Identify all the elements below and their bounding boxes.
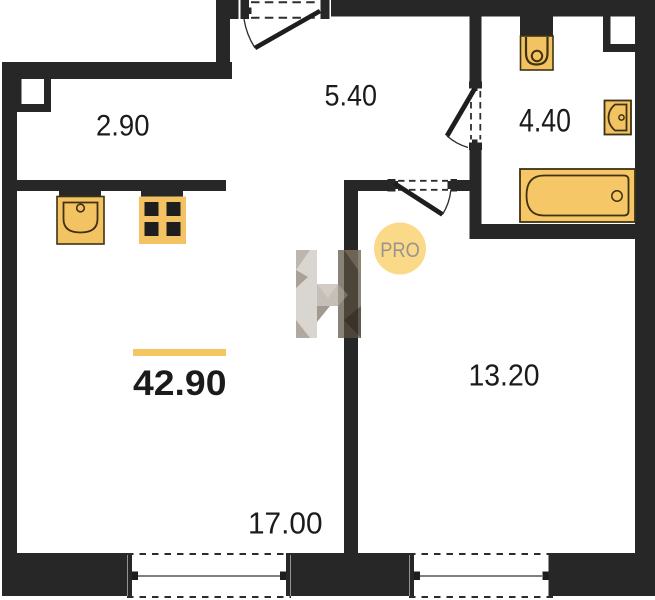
svg-text:2.90: 2.90 bbox=[96, 110, 150, 143]
svg-text:13.20: 13.20 bbox=[469, 358, 540, 393]
svg-text:17.00: 17.00 bbox=[248, 506, 323, 541]
svg-text:5.40: 5.40 bbox=[325, 80, 378, 113]
svg-text:42.90: 42.90 bbox=[133, 364, 227, 403]
svg-text:PRO: PRO bbox=[380, 238, 420, 262]
svg-text:4.40: 4.40 bbox=[519, 103, 571, 139]
